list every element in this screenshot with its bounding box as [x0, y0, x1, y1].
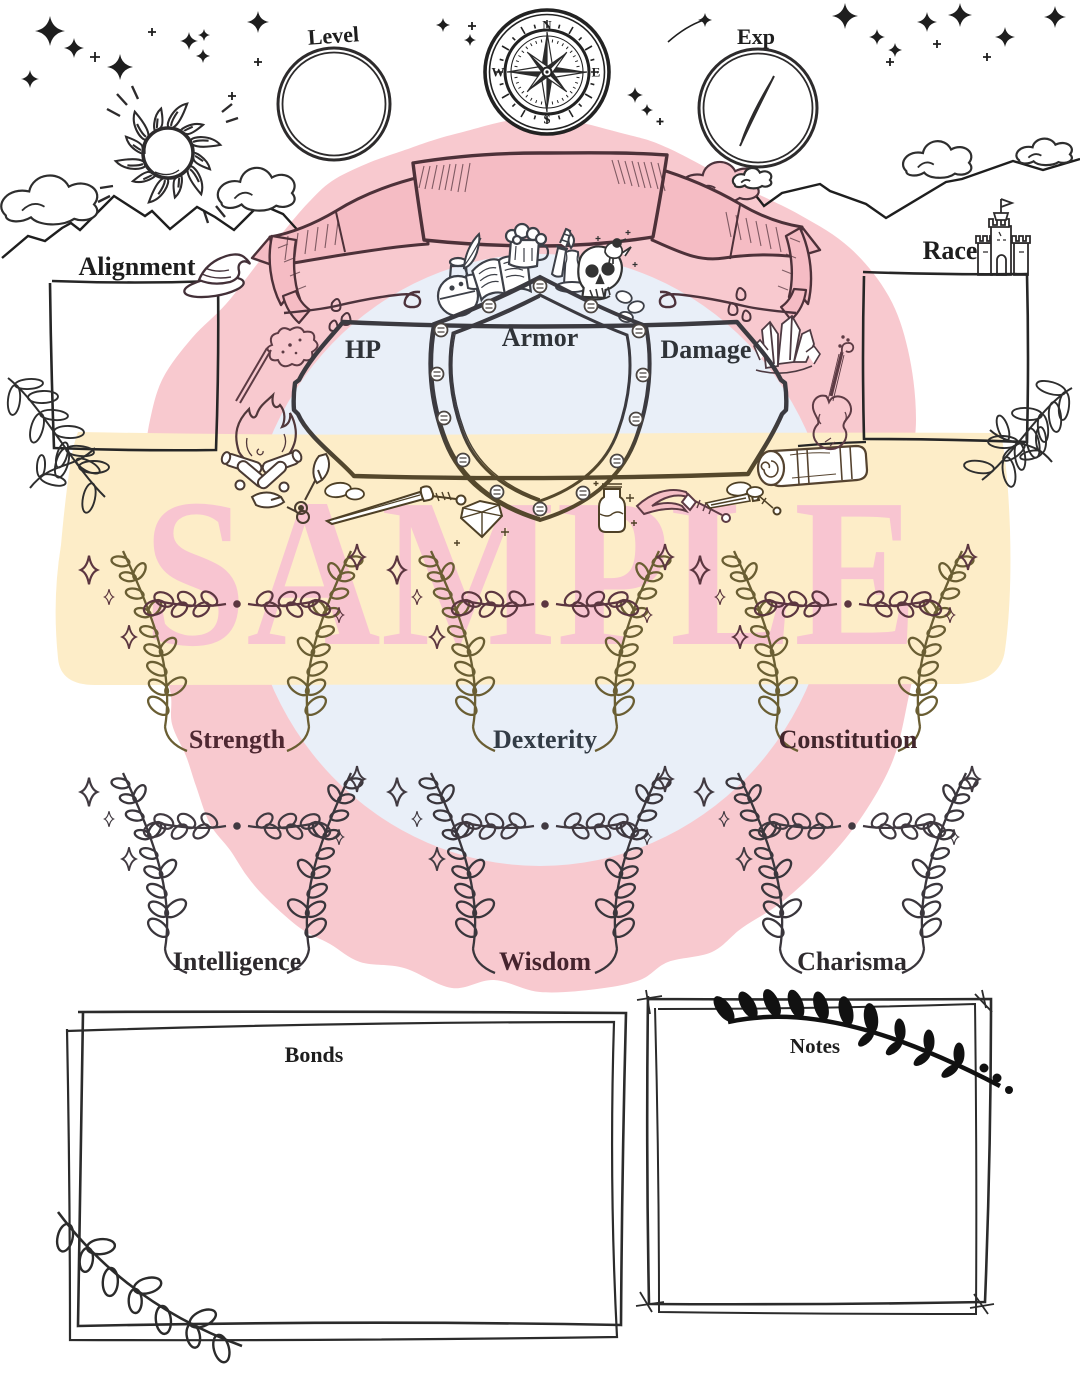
svg-text:N: N — [542, 18, 552, 33]
svg-text:Alignment: Alignment — [79, 252, 196, 281]
svg-text:Armor: Armor — [502, 323, 579, 352]
svg-text:Charisma: Charisma — [797, 947, 907, 976]
svg-text:Notes: Notes — [790, 1034, 840, 1058]
svg-text:Intelligence: Intelligence — [173, 947, 302, 976]
svg-text:W: W — [492, 65, 505, 80]
svg-text:Race: Race — [923, 236, 978, 265]
svg-text:Strength: Strength — [189, 725, 286, 754]
svg-text:Damage: Damage — [661, 335, 752, 364]
svg-text:Wisdom: Wisdom — [499, 947, 591, 976]
svg-text:HP: HP — [345, 335, 381, 364]
svg-text:Dexterity: Dexterity — [493, 725, 597, 754]
svg-text:S: S — [543, 112, 550, 127]
svg-text:E: E — [592, 65, 601, 80]
svg-text:Bonds: Bonds — [285, 1042, 344, 1067]
svg-text:Exp: Exp — [737, 24, 775, 49]
svg-text:SAMPLE: SAMPLE — [143, 455, 918, 690]
svg-text:Level: Level — [307, 21, 360, 50]
svg-text:Constitution: Constitution — [779, 725, 918, 754]
